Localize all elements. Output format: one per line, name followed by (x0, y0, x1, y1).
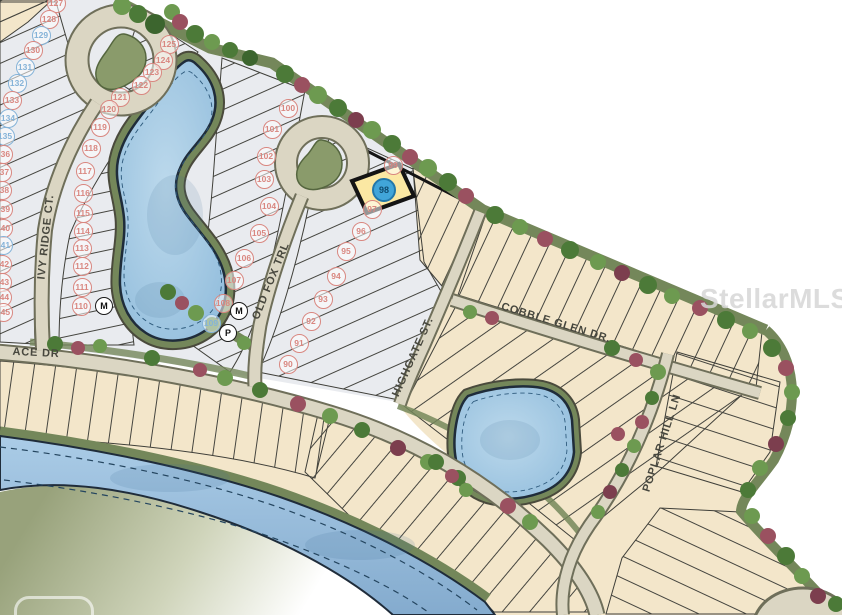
watermark: StellarMLS (700, 283, 842, 315)
faded-amenity-outline (14, 596, 94, 615)
site-plan: IVY RIDGE CT.OLD FOX TRLACE DRHIGHGATE S… (0, 0, 842, 615)
